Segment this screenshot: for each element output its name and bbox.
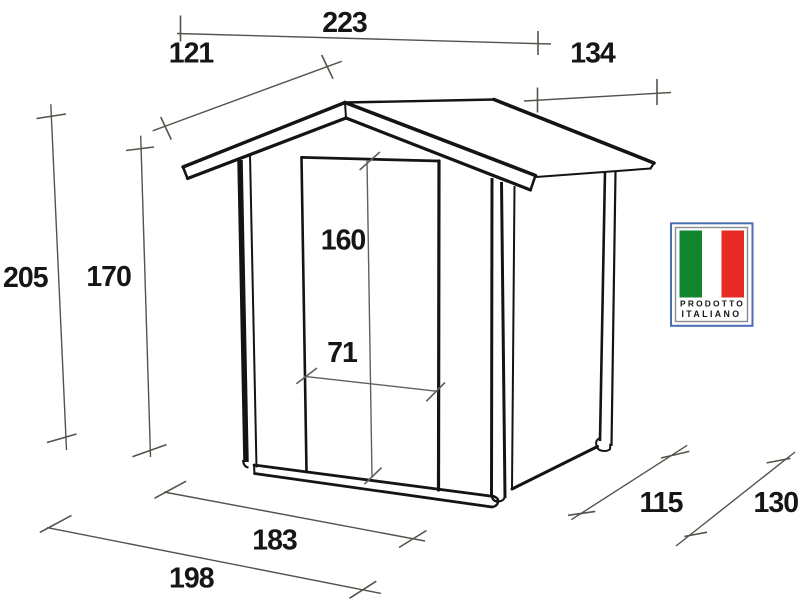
svg-text:223: 223 (322, 7, 367, 39)
svg-text:170: 170 (86, 261, 131, 293)
svg-text:205: 205 (3, 262, 49, 294)
svg-text:198: 198 (169, 563, 214, 595)
svg-text:121: 121 (169, 38, 215, 70)
svg-text:115: 115 (640, 487, 684, 519)
svg-text:160: 160 (321, 224, 366, 256)
svg-text:130: 130 (754, 487, 799, 519)
svg-text:183: 183 (252, 525, 297, 557)
svg-text:PRODOTTO: PRODOTTO (680, 299, 745, 309)
svg-text:134: 134 (570, 38, 616, 70)
svg-text:71: 71 (327, 337, 358, 369)
svg-text:ITALIANO: ITALIANO (681, 309, 741, 319)
